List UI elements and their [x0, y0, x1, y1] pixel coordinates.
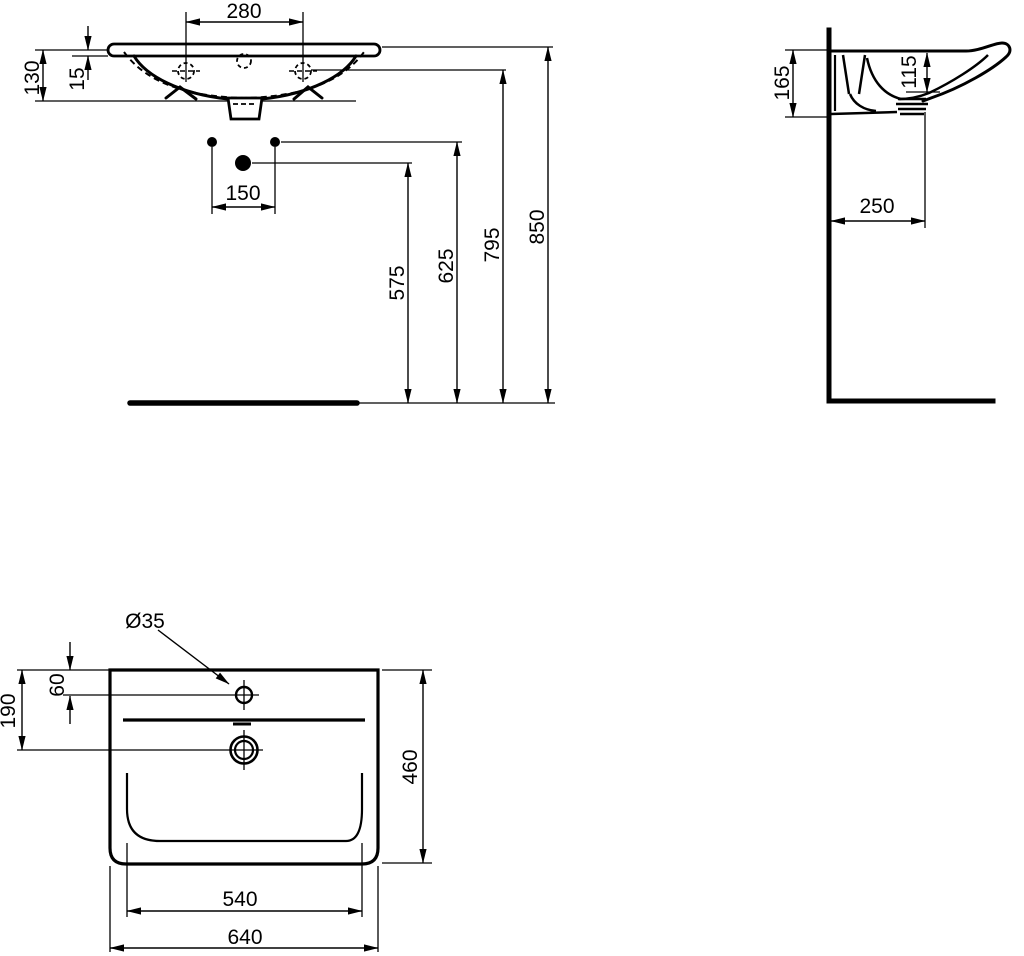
dim-label-850: 850: [526, 209, 549, 244]
dim-label-460: 460: [399, 749, 422, 784]
dim-label-190: 190: [0, 693, 20, 728]
front-extension-lines: [35, 12, 553, 214]
dim-label-795: 795: [481, 227, 504, 262]
right-fixing-hole-dot: [270, 137, 280, 147]
dim-label-dia35: Ø35: [125, 610, 165, 633]
dim-label-625: 625: [435, 248, 458, 283]
dim-label-15: 15: [66, 67, 89, 90]
front-view: 280 130 15 150 575 625 795 850: [21, 0, 555, 403]
side-underside: [831, 112, 897, 114]
front-dimension-lines: [43, 22, 548, 403]
dim-label-130: 130: [21, 60, 44, 95]
technical-drawing-page: 280 130 15 150 575 625 795 850: [0, 0, 1024, 956]
side-taphole-section: [843, 55, 865, 94]
front-rim-edge: [108, 44, 380, 56]
dim-label-60: 60: [46, 673, 69, 696]
dim-label-250: 250: [859, 195, 894, 218]
front-hidden-bowl-outline: [124, 52, 364, 98]
drain-center-dot: [235, 155, 251, 171]
dim-label-575: 575: [386, 265, 409, 300]
front-right-contour: [262, 56, 356, 99]
dim-label-640: 640: [227, 926, 262, 949]
front-drain-boss: [228, 98, 262, 119]
left-fixing-hole-dot: [207, 137, 217, 147]
dim-label-280: 280: [226, 0, 261, 23]
side-bowl-back-wall: [867, 58, 901, 99]
washbasin-dimension-drawing: 280 130 15 150 575 625 795 850: [0, 0, 1024, 956]
plan-view: Ø35 60 190 460 540 640: [0, 610, 432, 952]
side-underside-curve: [850, 94, 876, 111]
dim-label-165: 165: [771, 65, 794, 100]
dim-label-540: 540: [222, 888, 257, 911]
dim-label-115: 115: [898, 55, 921, 88]
side-view: 165 115 250: [771, 30, 1010, 401]
dim-label-150: 150: [225, 182, 260, 205]
